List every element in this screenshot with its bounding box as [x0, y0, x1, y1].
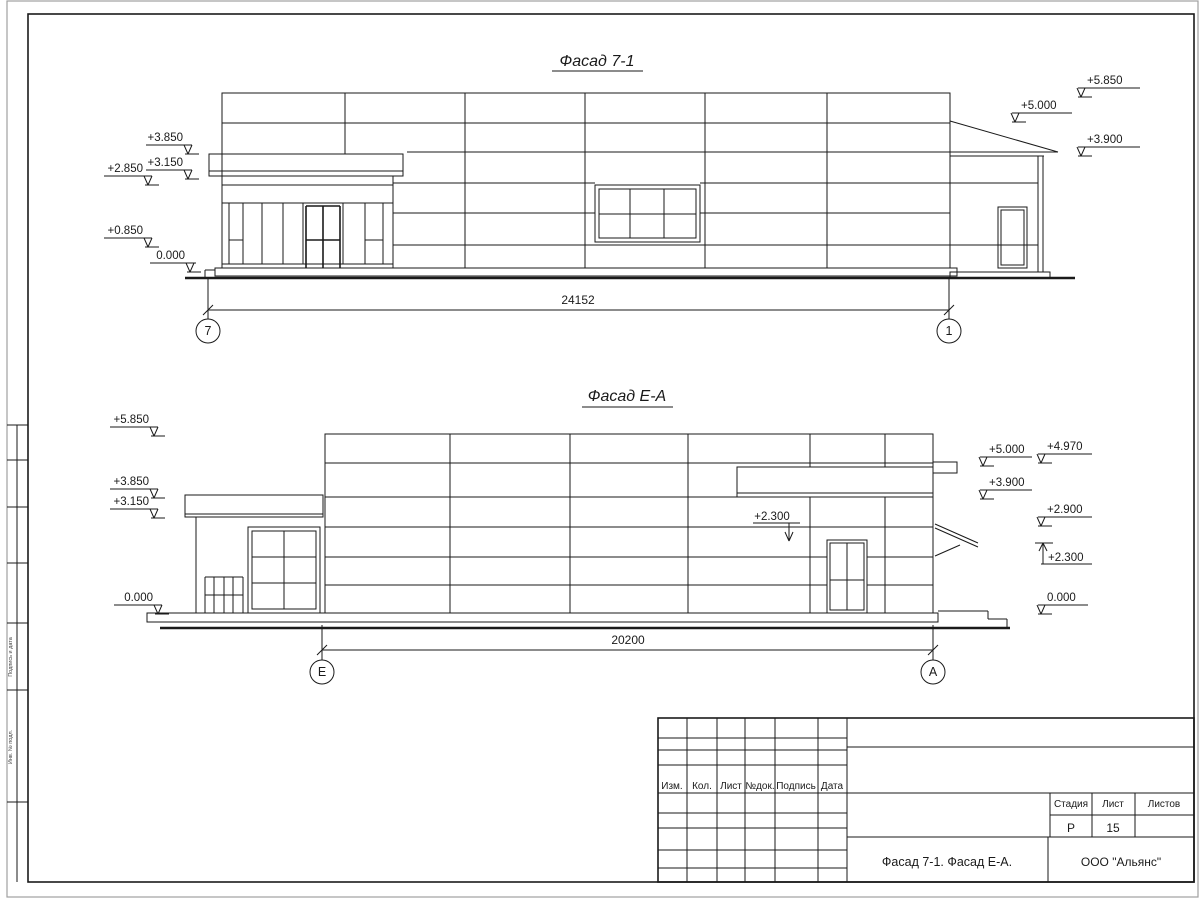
facade1-canopy — [209, 154, 403, 176]
elevation-mark-symbol — [104, 176, 159, 185]
facade1-entrance-glazing — [222, 176, 393, 268]
facade2-steps — [938, 611, 1007, 628]
left-stamp: Подпись и дата Инв. № подл. — [7, 425, 28, 882]
elevation-mark-label: +5.850 — [114, 414, 150, 426]
elevation-mark-label: +3.850 — [114, 476, 150, 488]
elevation-mark-label: 0.000 — [1047, 592, 1076, 604]
elevation-mark-label: +2.900 — [1047, 504, 1083, 516]
facade2-wall-outline — [325, 434, 933, 613]
titleblock-col-data: Дата — [821, 781, 844, 792]
elevation-mark-label: +5.000 — [989, 444, 1025, 456]
elevation-mark-symbol — [1077, 88, 1140, 97]
facade2-door — [827, 540, 867, 613]
facade2-base-slab — [147, 613, 938, 622]
elevation-mark-label: +2.850 — [108, 163, 144, 175]
elevation-mark-label: 0.000 — [124, 592, 153, 604]
facade2-wing-wall — [185, 514, 323, 613]
title-block-stage-section: Стадия Лист Листов Р 15 — [1054, 799, 1180, 835]
facade1-dimension: 24152 7 1 — [196, 279, 961, 343]
elevation-mark-label: +2.300 — [1048, 552, 1084, 564]
elevation-mark-label: +3.900 — [989, 477, 1025, 489]
elevation-mark-symbol — [1011, 113, 1072, 122]
facade2-title: Фасад Е-А — [588, 388, 666, 405]
facade2-axis-left-label: Е — [318, 665, 326, 679]
facade1-right-wing — [950, 121, 1058, 278]
elevation-mark-symbol — [104, 238, 159, 247]
facade-7-1-drawing: Фасад 7-1 24152 — [104, 53, 1140, 343]
elevation-mark-label: +3.850 — [148, 132, 184, 144]
facade2-elevation-marks-right-inner: +5.000 +3.900 — [979, 444, 1032, 499]
elevation-mark-label: +0.850 — [108, 225, 144, 237]
facade2-canopy-bracket — [935, 524, 978, 556]
elevation-mark-symbol — [146, 145, 199, 154]
title-block-header-row: Изм. Кол. Лист №док. Подпись Дата — [661, 781, 843, 792]
facade1-wing-roof — [950, 121, 1058, 272]
titleblock-col-izm: Изм. — [661, 781, 682, 792]
facade1-title: Фасад 7-1 — [560, 53, 635, 70]
elevation-mark-label: +2.300 — [754, 511, 790, 523]
left-stamp-row1-label: Подпись и дата — [8, 636, 14, 676]
facade2-wing-grille — [205, 577, 243, 613]
elevation-mark-symbol — [1077, 147, 1140, 156]
facade1-elevation-marks-left: +3.850 +3.150 +2.850 +0.850 0.000 — [104, 132, 201, 272]
elevation-mark-symbol — [1037, 517, 1092, 526]
facade2-panel-lines — [325, 434, 933, 613]
elevation-mark-symbol — [979, 457, 1032, 466]
facade2-door-mullions — [830, 543, 864, 610]
sheet-label: Лист — [1102, 799, 1124, 810]
elevation-mark-symbol — [150, 263, 201, 272]
facade2-elevation-marks-left: +5.850 +3.850 +3.150 0.000 — [110, 414, 169, 614]
sheets-label: Листов — [1148, 799, 1181, 810]
titleblock-col-list: Лист — [720, 781, 742, 792]
elevation-mark-label: +5.000 — [1021, 100, 1057, 112]
elevation-mark-label: +3.150 — [148, 157, 184, 169]
facade1-wall-outline — [222, 93, 950, 268]
elevation-mark-symbol — [146, 170, 199, 179]
facade1-wing-door-inner — [1001, 210, 1024, 265]
document-title: Фасад 7-1. Фасад Е-А. — [882, 855, 1012, 869]
company-name: ООО "Альянс" — [1081, 855, 1161, 869]
stage-label: Стадия — [1054, 799, 1088, 810]
facade1-wing-door — [998, 207, 1027, 268]
facade1-entrance-door — [306, 206, 340, 268]
elevation-mark-symbol — [110, 509, 165, 518]
elevation-mark-symbol — [110, 427, 165, 436]
facade2-dimension: 20200 Е А — [310, 625, 945, 684]
facade-e-a-drawing: Фасад Е-А +2.300 — [110, 388, 1092, 684]
facade1-base-slab — [215, 268, 957, 276]
elevation-mark-symbol — [753, 523, 800, 541]
elevation-mark-symbol — [979, 490, 1032, 499]
drawing-sheet: Подпись и дата Инв. № подл. Фасад 7-1 — [0, 0, 1200, 900]
elevation-mark-label: +5.850 — [1087, 75, 1123, 87]
elevation-mark-label: +3.900 — [1087, 134, 1123, 146]
facade1-axis-right-label: 1 — [946, 324, 953, 338]
elevation-mark-symbol — [1037, 605, 1088, 614]
facade2-left-wing — [185, 495, 323, 613]
elevation-mark-label: +4.970 — [1047, 441, 1083, 453]
facade2-wall-mark: +2.300 — [753, 511, 800, 541]
facade2-dimension-label: 20200 — [611, 633, 645, 647]
facade-drawing-svg: Подпись и дата Инв. № подл. Фасад 7-1 — [0, 0, 1200, 900]
sheet-number: 15 — [1106, 821, 1120, 835]
elevation-mark-label: +3.150 — [114, 496, 150, 508]
title-block: Изм. Кол. Лист №док. Подпись Дата Стадия… — [658, 718, 1194, 882]
facade2-fascia-tab — [933, 462, 957, 473]
facade2-elevation-marks-right-outer: +4.970 +2.900 +2.300 0.000 — [1035, 441, 1092, 614]
titleblock-col-kol: Кол. — [692, 781, 712, 792]
facade1-dimension-label: 24152 — [561, 293, 595, 307]
facade1-window — [595, 185, 700, 242]
elevation-mark-symbol — [1037, 454, 1092, 463]
facade2-wing-window-mullions — [252, 531, 316, 609]
elevation-mark-label: 0.000 — [156, 250, 185, 262]
stage-value: Р — [1067, 821, 1075, 835]
facade1-axis-left-label: 7 — [205, 324, 212, 338]
facade2-axis-right-label: А — [929, 665, 938, 679]
titleblock-col-dok: №док. — [745, 781, 774, 792]
left-stamp-row2-label: Инв. № подл. — [8, 729, 14, 764]
titleblock-col-podpis: Подпись — [776, 781, 816, 792]
facade1-window-mullions — [599, 189, 696, 238]
